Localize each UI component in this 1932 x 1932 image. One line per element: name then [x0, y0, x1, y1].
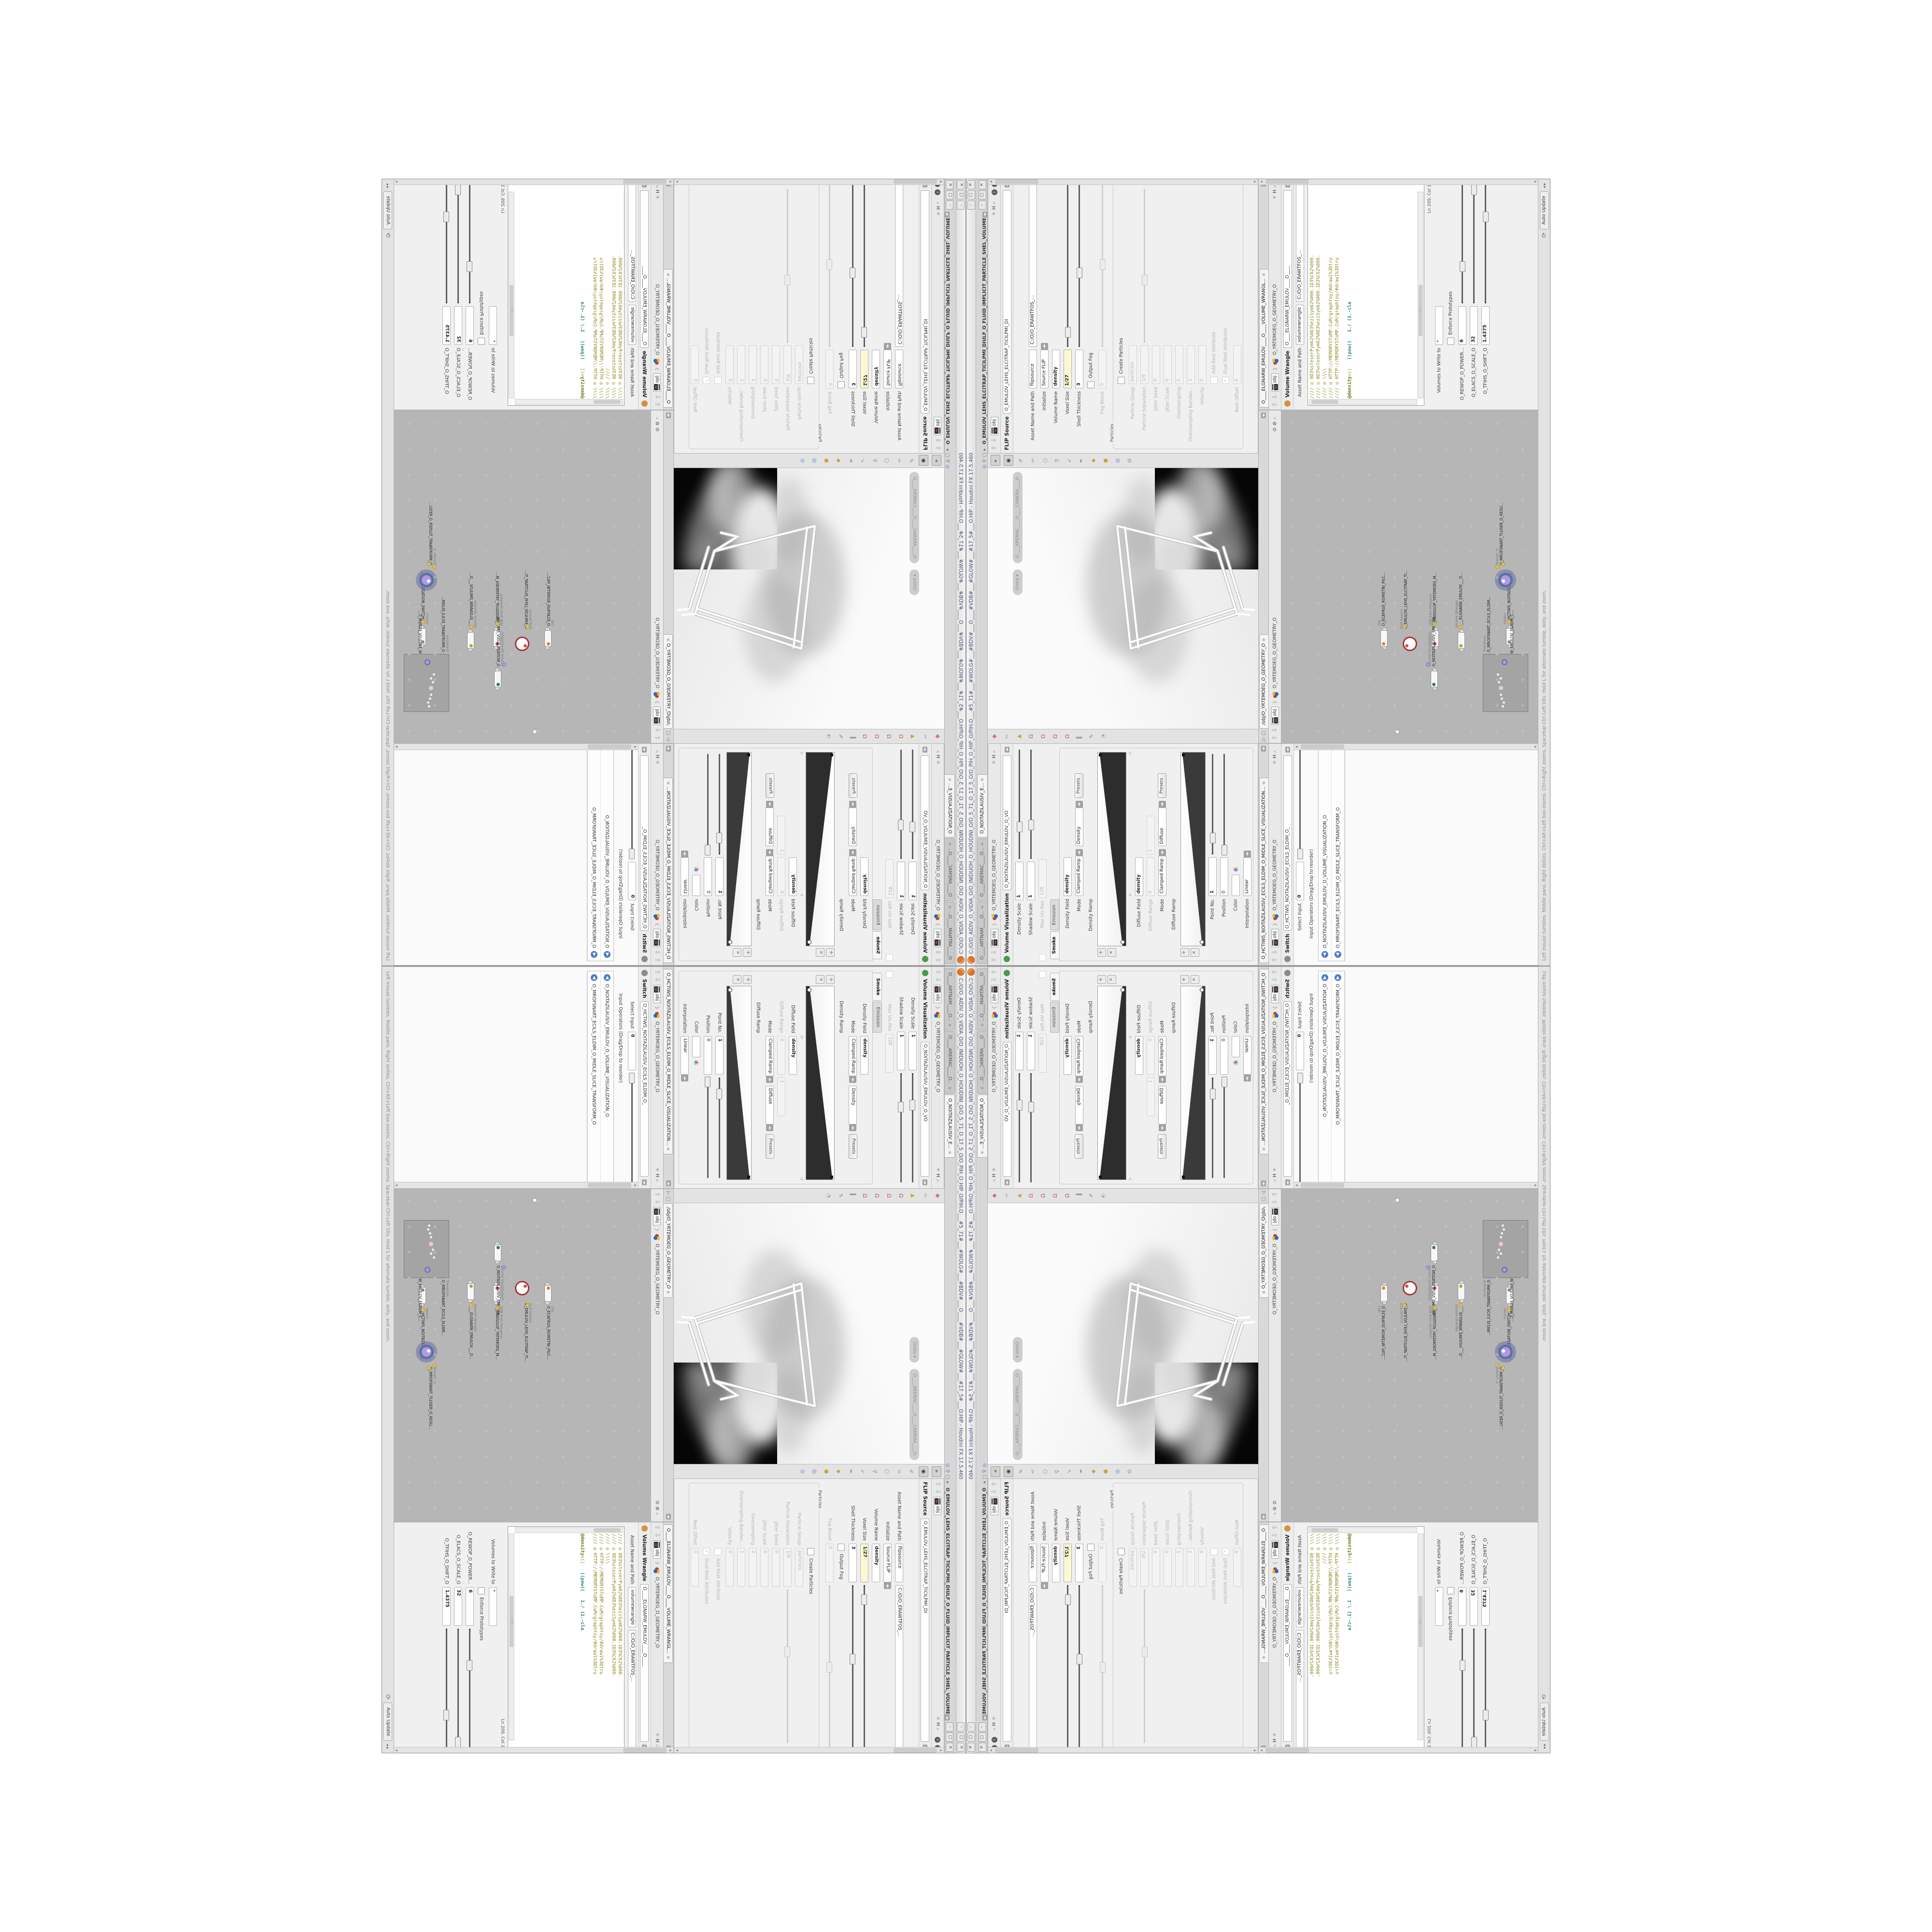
- switch-node-name-field[interactable]: O_HCTIWS_NOITAZILAUSIV_ECILS_ELDIM_O_: [640, 755, 649, 931]
- flip-node-name-field[interactable]: O_EMULOV_LEHS_ELCITRAP_TICILPMI_DI: [1003, 1519, 1011, 1742]
- param-value-field[interactable]: 1/9: [784, 1548, 792, 1587]
- network-node-volume-wrangle[interactable]: ●: [1458, 631, 1465, 650]
- toolbar-icon[interactable]: ⌕: [654, 1512, 660, 1515]
- slider-handle[interactable]: [444, 1710, 450, 1720]
- toolbar-icon[interactable]: ✳: [935, 1167, 940, 1171]
- toolbar-icon[interactable]: ⌕: [654, 1179, 660, 1182]
- viewport-tool-icon[interactable]: ✎: [836, 732, 845, 741]
- tab-close-icon[interactable]: ⊗: [667, 273, 671, 276]
- wrangle-pane-tab[interactable]: O____ELGNARW_EMULOV____O____VOLUME_WRANG…: [1259, 1524, 1268, 1663]
- asset-name-field[interactable]: volumewrangle: [1296, 1587, 1304, 1627]
- param-slider[interactable]: [1473, 1629, 1475, 1747]
- checkbox-unchecked[interactable]: [715, 377, 722, 384]
- pane-tab[interactable]: O____AREMAC____O...⊗: [945, 838, 955, 901]
- param-slider[interactable]: [829, 1585, 831, 1747]
- param-slider[interactable]: [1144, 189, 1145, 342]
- network-canvas[interactable]: ●ClipO_ECAFRUS_ROIRETNI_PILC...●FLIP Sou…: [1281, 1189, 1538, 1521]
- minimize-button[interactable]: –: [967, 1722, 975, 1732]
- nav-up-icon[interactable]: ⇧: [991, 969, 997, 975]
- param-slider[interactable]: [852, 185, 854, 347]
- obj-network-badge[interactable]: obj: [934, 985, 942, 1003]
- pane-splitter-chip[interactable]: ◀▶: [1261, 1514, 1266, 1520]
- checkbox-unchecked[interactable]: [808, 377, 815, 384]
- breadcrumb[interactable]: O_YRTEMOEG_O_GEOMETRY_O: [1272, 840, 1278, 911]
- asset-name-field[interactable]: flipsource: [1029, 1544, 1037, 1582]
- diffuse-ramp-widget[interactable]: [1180, 752, 1206, 946]
- network-node-clip[interactable]: ●: [1380, 629, 1388, 648]
- param-slider[interactable]: [446, 1629, 448, 1747]
- param-value-field[interactable]: 0: [826, 350, 834, 388]
- toolbar-icon[interactable]: H: [654, 190, 660, 194]
- nav-up-icon[interactable]: ⇧: [654, 1192, 660, 1197]
- toolbar-icon[interactable]: ✳: [992, 760, 997, 764]
- checkbox-unchecked[interactable]: [886, 971, 894, 978]
- slider-handle[interactable]: [629, 849, 635, 859]
- viewport-tool-icon[interactable]: Ω: [1051, 1191, 1060, 1201]
- pane-splitter-chip[interactable]: ◀▶: [1261, 746, 1266, 752]
- slider-handle[interactable]: [1460, 1660, 1465, 1671]
- viewport-tool-icon[interactable]: ✎: [836, 1191, 845, 1201]
- param-value-field[interactable]: density: [872, 350, 881, 388]
- viewport-tool-icon[interactable]: ✂: [1003, 1191, 1011, 1201]
- tab-close-icon[interactable]: ⊗: [667, 638, 671, 641]
- toolbar-icon[interactable]: ✳: [654, 1167, 660, 1171]
- ramp-end-handle[interactable]: [1182, 1176, 1185, 1179]
- viewport-tool-icon[interactable]: ⚲: [870, 456, 879, 466]
- presets-button[interactable]: Presets: [849, 1134, 857, 1159]
- checkbox-checked[interactable]: ✓: [1222, 1548, 1229, 1555]
- asset-path-field[interactable]: C:/O/O_ERAWTFOS_...: [1296, 183, 1304, 302]
- viewport-tool-icon[interactable]: ▍: [1075, 1191, 1084, 1201]
- ramp-end-handle[interactable]: [1099, 753, 1102, 756]
- param-value-field[interactable]: 2: [749, 1548, 757, 1587]
- network-node-volume-wrangle[interactable]: ●: [467, 1282, 474, 1301]
- param-value-field[interactable]: Diffuse: [766, 1086, 774, 1124]
- viewport-tool-icon[interactable]: Ω: [1039, 1191, 1048, 1201]
- tab-close-icon[interactable]: ⊗: [667, 1147, 671, 1151]
- pane-splitter-chip[interactable]: ◀▶: [1261, 1180, 1266, 1186]
- wrangle-pane-tab[interactable]: O____ELGNARW_EMULOV____O____VOLUME_WRANG…: [664, 269, 673, 408]
- slider-handle[interactable]: [717, 1089, 723, 1099]
- param-value-field[interactable]: density: [789, 1036, 797, 1075]
- param-value-field[interactable]: Source FLIP: [884, 1544, 892, 1582]
- update-mode-arrows-icon[interactable]: ◂ ▸: [1542, 1744, 1547, 1749]
- nav-down-icon[interactable]: ⇩: [654, 1199, 660, 1205]
- viewport-tool-icon[interactable]: ✂: [921, 1191, 929, 1201]
- toolbar-icon[interactable]: H: [654, 1174, 660, 1178]
- param-slider[interactable]: [469, 185, 471, 303]
- param-value-field[interactable]: 1: [716, 1036, 724, 1075]
- switch-pane-tab[interactable]: O_HCTIWS_NOITAZILAUSIV_ECILS_ELDIM_O_MID…: [1259, 969, 1268, 1154]
- param-value-field[interactable]: 0: [726, 1548, 734, 1587]
- asset-path-field[interactable]: C:/O/O_ERAWTFOS_...: [628, 1630, 637, 1749]
- editor-vertical-scrollbar[interactable]: [1309, 1527, 1417, 1533]
- param-value-field[interactable]: 1: [778, 816, 786, 854]
- tab-close-icon[interactable]: ⊗: [1262, 1291, 1266, 1294]
- toolbar-icon[interactable]: ◎: [982, 1463, 987, 1467]
- input-operator-item[interactable]: ◀O_MROFSNART_ECILS_ELDIM_O_MIDLE_SLICE_T…: [1332, 748, 1345, 961]
- param-value-field[interactable]: density: [861, 857, 869, 896]
- param-slider[interactable]: [901, 1073, 902, 1182]
- color-picker-icon[interactable]: ◉: [1232, 867, 1239, 872]
- param-value-field[interactable]: 128: [1038, 859, 1047, 898]
- nav-up-icon[interactable]: ⇧: [1272, 1525, 1278, 1530]
- viewport-tool-icon[interactable]: ✂: [921, 732, 929, 741]
- wrangle-scrollbar[interactable]: ▲▼: [394, 179, 673, 185]
- viewport-tool-icon[interactable]: ◔: [824, 732, 833, 741]
- network-node-flip-source[interactable]: ●: [515, 1281, 529, 1295]
- editor-horizontal-scrollbar[interactable]: ⠿⠿: [1418, 192, 1423, 398]
- toolbar-icon[interactable]: ⌕: [935, 1179, 940, 1182]
- pane-tab[interactable]: O____AREMAC____O...⊗: [945, 1031, 955, 1094]
- toolbar-icon[interactable]: H: [654, 755, 660, 759]
- color-swatch[interactable]: [693, 875, 701, 896]
- viewport-tool-icon[interactable]: ▸: [991, 455, 1000, 466]
- dropdown-arrows-icon[interactable]: ◀▶: [850, 849, 857, 856]
- pane-tab[interactable]: O_NOITAZILAUSIV_E...⊗: [977, 1094, 987, 1158]
- param-slider[interactable]: [1067, 185, 1068, 347]
- nav-up-icon[interactable]: ⇧: [1272, 1192, 1278, 1197]
- param-value-field[interactable]: Clamped Ramp: [766, 856, 774, 896]
- asset-name-field[interactable]: volumewrangle: [628, 1587, 637, 1627]
- param-value-field[interactable]: Density: [1075, 808, 1083, 846]
- param-value-field[interactable]: 32: [455, 306, 463, 345]
- param-slider[interactable]: [1019, 1073, 1020, 1182]
- toolbar-icon[interactable]: ✳: [654, 760, 660, 764]
- tab-close-icon[interactable]: ⊗: [1262, 781, 1266, 785]
- pane-tab[interactable]: O____AREMAC____O...⊗: [977, 1031, 987, 1094]
- checkbox-unchecked[interactable]: [1039, 954, 1046, 961]
- viewport-tool-icon[interactable]: ○: [882, 1467, 891, 1477]
- ramp-add-point-button[interactable]: ✛: [1180, 975, 1189, 984]
- asset-name-field[interactable]: flipsource: [895, 1544, 904, 1582]
- color-picker-icon[interactable]: ◉: [693, 1060, 700, 1065]
- dropdown-arrows-icon[interactable]: ◀▶: [1076, 1124, 1083, 1131]
- viewport-tool-icon[interactable]: ✂: [1003, 732, 1011, 741]
- param-value-field[interactable]: 2: [1175, 345, 1183, 384]
- slider-handle[interactable]: [910, 822, 916, 832]
- network-breadcrumb[interactable]: O_YRTEMOEG_O_GEOMETRY_O: [654, 1244, 660, 1315]
- toolbar-icon[interactable]: ⌕: [1272, 417, 1278, 420]
- obj-network-badge[interactable]: obj: [1271, 373, 1279, 392]
- viewport-tool-icon[interactable]: Ω: [1063, 732, 1072, 741]
- viewport-tool-icon[interactable]: ⊙: [1125, 456, 1134, 466]
- toolbar-icon[interactable]: ⌕: [1272, 1179, 1278, 1182]
- param-value-field[interactable]: *: [1435, 1587, 1443, 1626]
- ramp-end-handle[interactable]: [1182, 753, 1185, 756]
- breadcrumb[interactable]: O_YRTEMOEG_O_GEOMETRY_O: [654, 1022, 660, 1093]
- pane-expand-icon[interactable]: ▷: [666, 737, 671, 741]
- param-slider[interactable]: [1462, 185, 1463, 303]
- switch-scrollbar[interactable]: ▲▼: [1294, 744, 1538, 750]
- param-value-field[interactable]: 1.4375: [1481, 306, 1490, 345]
- toolbar-icon[interactable]: ⌕: [992, 1728, 997, 1731]
- diffuse-ramp-widget[interactable]: [726, 752, 752, 946]
- param-value-field[interactable]: 1/9: [1140, 1548, 1149, 1587]
- update-mode-arrows-icon[interactable]: ◂ ▸: [386, 183, 390, 188]
- slider-handle[interactable]: [898, 1102, 904, 1112]
- slider-handle[interactable]: [1483, 212, 1489, 222]
- float-minimize-button[interactable]: –: [979, 1722, 986, 1732]
- nav-down-icon[interactable]: ⇩: [1272, 727, 1278, 733]
- ramp-delete-point-button[interactable]: ✕: [1191, 975, 1199, 984]
- toolbar-icon[interactable]: ⌕: [992, 750, 997, 753]
- param-value-field[interactable]: 1: [1187, 1548, 1195, 1587]
- dropdown-arrows-icon[interactable]: ◀▶: [682, 1075, 689, 1081]
- dropdown-arrows-icon[interactable]: ◀▶: [1244, 851, 1251, 857]
- param-value-field[interactable]: Clamped Ramp: [849, 1036, 857, 1076]
- presets-button[interactable]: Presets: [1075, 773, 1083, 798]
- obj-network-badge[interactable]: obj: [653, 1540, 661, 1559]
- param-value-field[interactable]: 2: [749, 345, 757, 384]
- param-value-field[interactable]: 1: [1147, 1078, 1155, 1116]
- network-node-volume-visualization[interactable]: ●: [1431, 1243, 1438, 1263]
- checkbox-unchecked[interactable]: [1087, 1544, 1094, 1551]
- param-value-field[interactable]: Clamped Ramp: [1158, 1036, 1166, 1076]
- dropdown-arrows-icon[interactable]: ◀▶: [1159, 1124, 1166, 1131]
- viewport-tool-icon[interactable]: ➶: [858, 1467, 867, 1477]
- param-slider[interactable]: [787, 189, 789, 342]
- vex-code-editor[interactable]: //// ◎ 0D3%steserPym62%0D3%eziSym62%000.…: [1307, 183, 1424, 406]
- slider-handle[interactable]: [1077, 268, 1082, 278]
- network-canvas[interactable]: ●ClipO_ECAFRUS_ROIRETNI_PILC...●FLIP Sou…: [394, 1189, 651, 1521]
- param-value-field[interactable]: 1/9: [1140, 345, 1149, 384]
- obj-network-badge[interactable]: obj: [1271, 1540, 1279, 1559]
- checkbox-unchecked[interactable]: [478, 338, 485, 345]
- breadcrumb[interactable]: O_YRTEMOEG_O_GEOMETRY_O: [992, 1022, 997, 1093]
- pane-tab[interactable]: O_NOITAZILAUSIV_E...⊗: [945, 774, 955, 838]
- slider-handle[interactable]: [850, 268, 856, 278]
- param-value-field[interactable]: 6: [466, 1587, 474, 1626]
- maximize-button[interactable]: □: [957, 1733, 965, 1742]
- tab-close-icon[interactable]: ⊗: [1262, 1656, 1266, 1659]
- vex-code-editor[interactable]: //// ◎ 0D3%steserPym62%0D3%eziSym62%000.…: [508, 183, 625, 406]
- viewport-tool-icon[interactable]: ⚲: [1053, 456, 1062, 466]
- slider-handle[interactable]: [1471, 1737, 1477, 1747]
- ramp-point-handle[interactable]: [728, 988, 732, 992]
- viewport-tool-icon[interactable]: ◔: [824, 1191, 833, 1201]
- viewport-tool-icon[interactable]: ▸: [991, 1466, 1000, 1477]
- tab-close-icon[interactable]: ⊗: [1262, 1147, 1266, 1151]
- slider-handle[interactable]: [1297, 849, 1303, 859]
- toolbar-icon[interactable]: ✳: [935, 760, 940, 764]
- color-picker-icon[interactable]: ◉: [693, 867, 700, 872]
- param-slider[interactable]: [719, 1078, 721, 1178]
- param-slider[interactable]: [1299, 750, 1301, 859]
- param-value-field[interactable]: Linear: [681, 857, 689, 896]
- flip-node-name-field[interactable]: O_EMULOV_LEHS_ELCITRAP_TICILPMI_DI: [921, 190, 930, 413]
- checkbox-unchecked[interactable]: [886, 954, 894, 961]
- nav-down-icon[interactable]: ⇩: [654, 394, 660, 399]
- param-slider[interactable]: [912, 1073, 914, 1182]
- slider-handle[interactable]: [898, 820, 904, 830]
- ramp-add-point-button[interactable]: ✛: [826, 975, 835, 984]
- vv-splitter-chip[interactable]: ◀▶: [1005, 1179, 1009, 1185]
- toolbar-icon[interactable]: ⚲: [945, 459, 950, 462]
- viewport-tool-icon[interactable]: ◎: [1113, 456, 1122, 466]
- scene-viewport[interactable]: ✥✂▲ΩΩΩΩ▍✎◔ Ortho ▾: [988, 454, 1258, 743]
- toolbar-icon[interactable]: H: [992, 1174, 997, 1178]
- viewport-tool-icon[interactable]: ✐: [907, 456, 915, 466]
- param-value-field[interactable]: 1: [1187, 345, 1195, 384]
- param-slider[interactable]: [1299, 1073, 1301, 1182]
- nav-down-icon[interactable]: ⇩: [654, 1533, 660, 1538]
- flip-scrollbar[interactable]: ▲▼: [988, 179, 1258, 185]
- param-value-field[interactable]: 0: [772, 1548, 781, 1587]
- ramp-point-handle[interactable]: [807, 988, 811, 992]
- breadcrumb[interactable]: O_YRTEMOEG_O_GEOMETRY_O: [654, 1577, 660, 1648]
- param-slider[interactable]: [912, 750, 914, 859]
- viewport-tool-icon[interactable]: Ω: [872, 732, 881, 741]
- toolbar-icon[interactable]: ▢: [945, 1475, 950, 1479]
- toolbar-icon[interactable]: ✳: [935, 212, 940, 215]
- float-close-button[interactable]: ✕: [979, 1743, 986, 1752]
- view-type-pill[interactable]: Ortho ▾: [1013, 1337, 1023, 1363]
- viewport-tool-icon[interactable]: ◆: [834, 1467, 843, 1477]
- pane-splitter-chip[interactable]: ◀▶: [666, 746, 671, 752]
- slider-handle[interactable]: [1028, 820, 1034, 830]
- nav-down-icon[interactable]: ⇩: [654, 950, 660, 955]
- param-value-field[interactable]: particles: [1129, 345, 1137, 384]
- param-value-field[interactable]: 0: [726, 345, 734, 384]
- param-value-field[interactable]: 32: [1470, 306, 1478, 345]
- network-node-flip-source[interactable]: ●: [515, 637, 529, 651]
- float-maximize-button[interactable]: □: [979, 1733, 986, 1742]
- float-minimize-button[interactable]: –: [946, 1722, 953, 1732]
- tab-close-icon[interactable]: ⊗: [980, 1023, 984, 1027]
- tab-close-icon[interactable]: ⊗: [980, 1086, 984, 1090]
- dropdown-arrows-icon[interactable]: ◀▶: [884, 343, 892, 350]
- info-icon[interactable]: i: [992, 1737, 997, 1743]
- tab-close-icon[interactable]: ⊗: [948, 906, 952, 909]
- dropdown-arrows-icon[interactable]: ◀▶: [1041, 343, 1048, 350]
- pane-expand-icon[interactable]: ▷: [1261, 1191, 1266, 1195]
- viewport-tool-icon[interactable]: ◉: [1004, 455, 1013, 466]
- viewport-tool-icon[interactable]: ✑: [895, 456, 903, 466]
- obj-network-badge[interactable]: obj: [991, 417, 998, 435]
- refresh-icon[interactable]: ⟳: [1541, 232, 1548, 238]
- vv-splitter-chip[interactable]: ◀▶: [923, 747, 928, 753]
- dropdown-arrows-icon[interactable]: ◀▶: [1159, 801, 1166, 808]
- checkbox-unchecked[interactable]: [1447, 1587, 1454, 1594]
- viewport-tool-icon[interactable]: Ω: [860, 732, 869, 741]
- switch-pane-tab[interactable]: O_HCTIWS_NOITAZILAUSIV_ECILS_ELDIM_O_MID…: [1259, 778, 1268, 963]
- param-value-field[interactable]: 1: [897, 862, 906, 900]
- network-node-clip[interactable]: ●: [1380, 1284, 1388, 1303]
- param-value-field[interactable]: Clamped Ramp: [1075, 1036, 1083, 1076]
- toolbar-icon[interactable]: ⌕: [1272, 185, 1278, 188]
- nav-up-icon[interactable]: ⇧: [935, 445, 941, 451]
- ramp-end-handle[interactable]: [747, 1176, 750, 1179]
- toolbar-icon[interactable]: ⌕: [1272, 750, 1278, 753]
- nav-up-icon[interactable]: ⇧: [654, 969, 660, 975]
- toolbar-icon[interactable]: ✳: [935, 1716, 940, 1720]
- input-operator-item[interactable]: ◀O_NOITAZILAUSIV_EMULOV_O_VOLUME_VISUALI…: [1319, 971, 1332, 1184]
- viewport-tool-icon[interactable]: ✑: [1029, 1467, 1037, 1477]
- editor-horizontal-scrollbar[interactable]: ⠿⠿: [1418, 1534, 1423, 1740]
- refresh-icon[interactable]: ⟳: [1541, 1694, 1548, 1700]
- obj-network-badge[interactable]: obj: [934, 929, 942, 947]
- tab-close-icon[interactable]: ⊗: [980, 842, 984, 846]
- slider-handle[interactable]: [862, 327, 867, 338]
- breadcrumb[interactable]: O_YRTEMOEG_O_GEOMETRY_O: [935, 1022, 940, 1093]
- editor-horizontal-scrollbar[interactable]: ⠿⠿: [509, 192, 514, 398]
- folder-tab-emission[interactable]: Emission: [873, 899, 882, 930]
- nav-down-icon[interactable]: ⇩: [991, 977, 997, 982]
- folder-tab-smoke[interactable]: Smoke: [873, 931, 882, 959]
- toolbar-icon[interactable]: ⊘: [654, 1506, 660, 1510]
- float-maximize-button[interactable]: □: [946, 190, 953, 199]
- switch-pane-tab[interactable]: O_HCTIWS_NOITAZILAUSIV_ECILS_ELDIM_O_MID…: [664, 778, 673, 963]
- param-value-field[interactable]: 0: [778, 1036, 786, 1075]
- viewport-tool-icon[interactable]: Ω: [896, 732, 905, 741]
- ramp-delete-point-button[interactable]: ✕: [733, 975, 741, 984]
- param-value-field[interactable]: 0: [1296, 862, 1304, 900]
- checkbox-unchecked[interactable]: [838, 1544, 845, 1551]
- network-node-transform[interactable]: ●: [1498, 1345, 1513, 1359]
- dropdown-arrows-icon[interactable]: ◀▶: [767, 849, 774, 856]
- param-value-field[interactable]: Density: [1075, 1086, 1083, 1124]
- toolbar-icon[interactable]: ✳: [992, 1167, 997, 1171]
- vv-splitter-chip[interactable]: ◀▶: [1005, 747, 1009, 753]
- param-slider[interactable]: [1102, 185, 1103, 347]
- presets-button[interactable]: Presets: [1158, 1134, 1166, 1159]
- param-value-field[interactable]: Clamped Ramp: [766, 1036, 774, 1076]
- viewport-tool-icon[interactable]: ✐: [1017, 456, 1025, 466]
- toolbar-icon[interactable]: ⚲: [945, 1469, 950, 1473]
- camera-name-pill[interactable]: O____AREMAC____O____CAMERA____O: [1013, 472, 1023, 563]
- maximize-button[interactable]: □: [957, 190, 965, 199]
- slider-handle[interactable]: [1017, 822, 1023, 832]
- viewport-tool-icon[interactable]: ✥: [933, 1191, 941, 1201]
- asset-path-field[interactable]: C:/O/O_ERAWTFOS_...: [1296, 1630, 1304, 1749]
- camera-name-pill[interactable]: O____AREMAC____O____CAMERA____O: [1013, 1369, 1023, 1460]
- param-value-field[interactable]: particles: [796, 1548, 804, 1587]
- switch-splitter-chip[interactable]: ◀▶: [1285, 1179, 1290, 1185]
- param-value-field[interactable]: 6: [1458, 306, 1466, 345]
- vex-code-editor[interactable]: //// ◎ 0D3%steserPym62%0D3%eziSym62%000.…: [1307, 1526, 1424, 1749]
- viewport-tool-icon[interactable]: ●: [822, 456, 831, 466]
- ramp-add-point-button[interactable]: ✛: [826, 948, 835, 957]
- pane-tab[interactable]: O____ARTNAM____O...⊗: [945, 968, 955, 1030]
- nav-up-icon[interactable]: ⇧: [1272, 402, 1278, 407]
- pane-tab[interactable]: O_NOITAZILAUSIV_E...⊗: [977, 774, 987, 838]
- param-slider[interactable]: [1079, 1585, 1080, 1747]
- slider-handle[interactable]: [467, 261, 473, 272]
- toolbar-icon[interactable]: H: [1272, 1739, 1278, 1743]
- color-swatch[interactable]: [1232, 875, 1240, 896]
- wrangle-node-name-field[interactable]: O____ELGNARW_EMULOV____O____: [1283, 190, 1292, 348]
- tab-close-icon[interactable]: ⊗: [948, 842, 952, 846]
- ramp-prev-point-icon[interactable]: ▷: [800, 1036, 804, 1039]
- toolbar-icon[interactable]: H: [992, 206, 997, 210]
- param-slider[interactable]: [829, 185, 831, 347]
- viewport-tool-icon[interactable]: ✥: [933, 732, 941, 741]
- param-slider[interactable]: [1462, 1629, 1463, 1747]
- viewport-tool-icon[interactable]: Ω: [896, 1191, 905, 1201]
- param-slider[interactable]: [458, 1629, 459, 1747]
- param-value-field[interactable]: density: [872, 1544, 881, 1582]
- slider-handle[interactable]: [785, 1647, 791, 1657]
- dropdown-arrows-icon[interactable]: ◀▶: [767, 1076, 774, 1083]
- viewport-tool-icon[interactable]: ➶: [1065, 1467, 1074, 1477]
- minimize-button[interactable]: –: [957, 200, 965, 210]
- vex-code-editor[interactable]: //// ◎ 0D3%steserPym62%0D3%eziSym62%000.…: [508, 1526, 625, 1749]
- pane-splitter-chip[interactable]: ◀▶: [945, 212, 950, 217]
- pane-splitter-chip[interactable]: ◀▶: [666, 1514, 671, 1520]
- ramp-add-point-button[interactable]: ✛: [1097, 975, 1106, 984]
- info-icon[interactable]: i: [935, 1737, 941, 1743]
